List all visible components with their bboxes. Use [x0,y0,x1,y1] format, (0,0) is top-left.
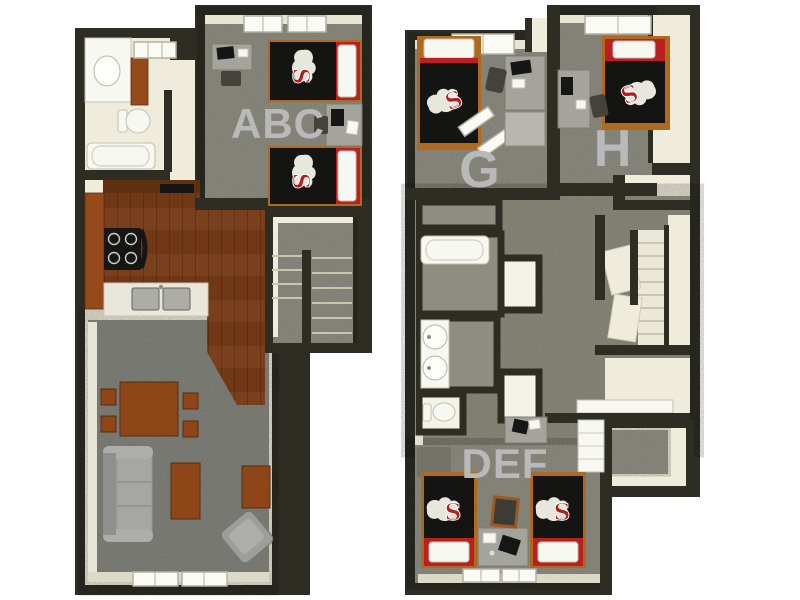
papers [576,100,586,109]
pillow [338,151,356,201]
floorplan-second-floor: G H [405,5,700,595]
papers [483,533,496,543]
base-cabinets [85,193,104,309]
desk-chair [221,71,241,86]
bed [417,36,481,150]
closet-wall [525,18,532,52]
vanity-sink [423,356,447,380]
papers [346,120,359,134]
pillow [338,45,356,97]
faucet [427,366,431,370]
papers [528,419,540,429]
wall-face [205,15,362,24]
linen-closet [419,202,499,228]
bathroom-cabinet [131,58,148,105]
storage-room [606,424,690,490]
pillow [424,39,474,58]
pillow [429,542,469,562]
floorplan-rendering: S [0,0,800,600]
wardrobe [578,420,604,472]
range-hood [160,184,194,193]
sofa [103,446,153,542]
bathroom-skylight [134,42,176,58]
room-label-h: H [594,120,633,178]
toilet-bowl [433,403,455,421]
computer-monitor [331,109,344,126]
sofa-back [103,453,116,535]
coffee-table [171,463,200,519]
computer-monitor [216,46,234,60]
end-table [242,466,270,508]
side-table [505,112,545,146]
stair-flight [638,230,664,345]
pillow [613,41,655,58]
stairs-floor [272,217,353,343]
closet [501,258,539,310]
floorplan-first-floor: ABC [75,5,372,595]
bathroom-sink [94,56,120,86]
built-in-counter [577,400,673,413]
faucet [427,335,431,339]
stove [104,228,141,270]
kitchen-sink-basin [163,288,190,310]
storage-carpet [612,430,668,474]
kitchen-sink-basin [132,288,159,310]
toilet-bowl [126,109,150,133]
wooden-chair [492,497,519,527]
pillow [538,542,578,562]
sofa-cushions [118,459,151,529]
faucet [159,285,163,289]
bed [602,36,670,130]
closet [501,372,539,420]
stair-corridor [668,215,690,345]
papers [512,79,525,88]
room-label-def: DEF [462,440,549,487]
dining-table [120,382,178,436]
wall-face [272,217,353,223]
dining-chair [101,416,116,432]
computer-monitor [561,77,573,95]
hall-floor [170,60,195,180]
computer-monitor [510,60,532,76]
vanity-sink [423,325,447,349]
closet-floor [532,18,547,52]
bed [268,40,362,102]
papers [238,49,248,57]
mouse [490,551,495,556]
dining-chair [183,421,198,437]
floorplan-canvas: S [0,0,800,600]
room-label-g: G [459,141,500,199]
wall-face [88,322,97,572]
toilet-tank [423,404,431,421]
dining-chair [183,393,198,409]
room-label-abc: ABC [231,100,325,147]
dining-chair [101,389,116,405]
bed [268,146,362,206]
